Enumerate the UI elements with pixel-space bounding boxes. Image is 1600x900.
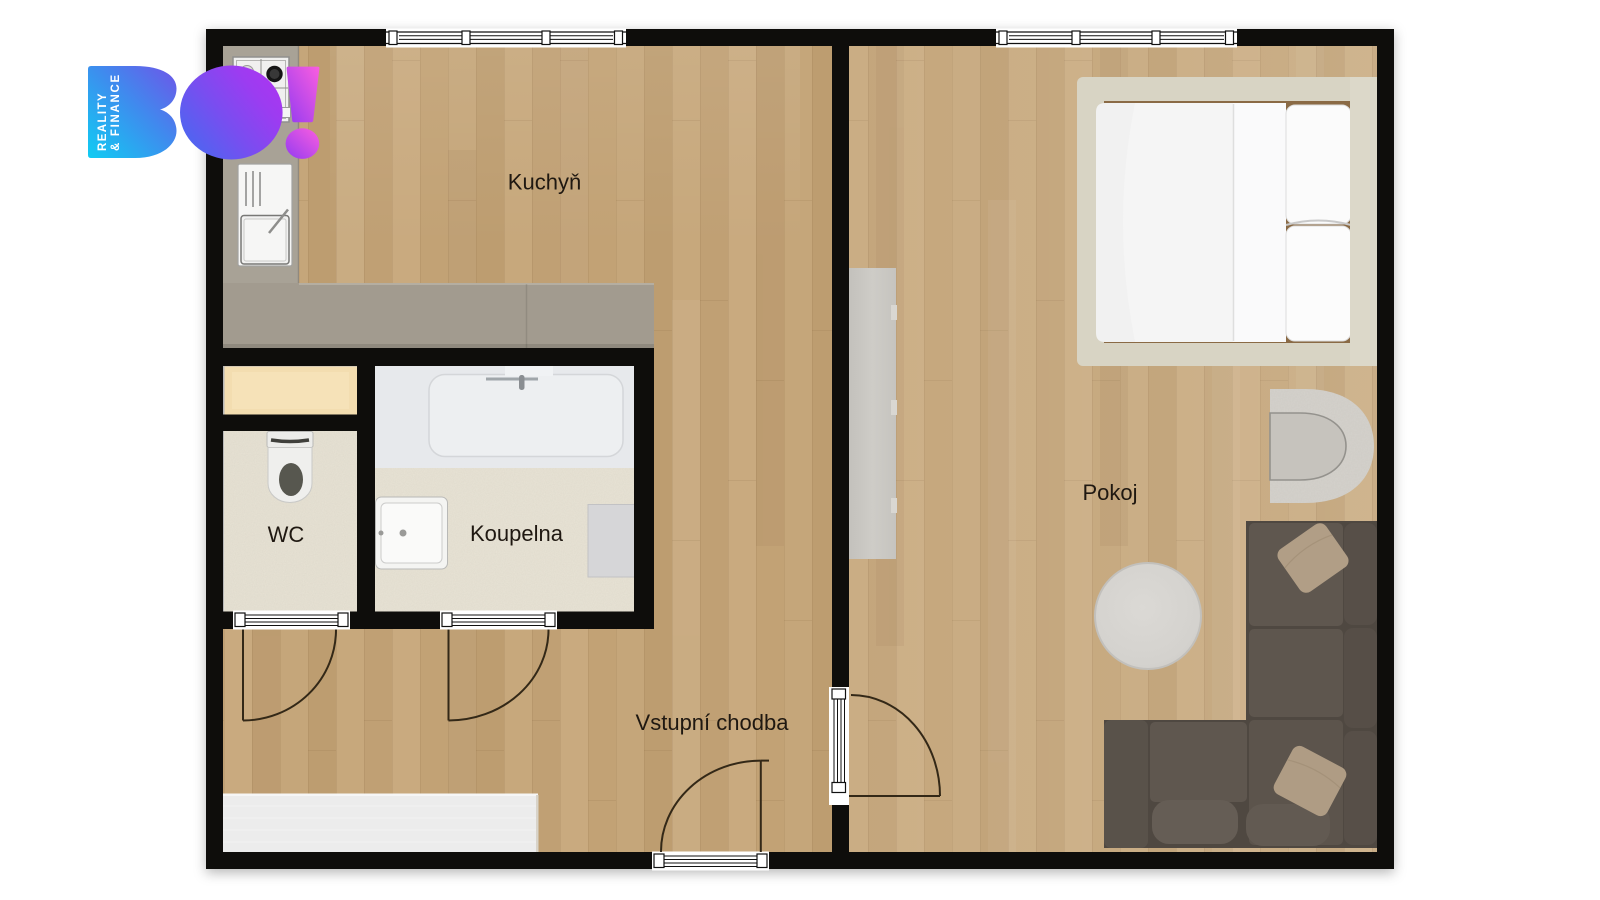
svg-text:REALITY: REALITY xyxy=(97,92,109,151)
svg-text:& FINANCE: & FINANCE xyxy=(110,73,122,151)
svg-text:Vstupní chodba: Vstupní chodba xyxy=(636,710,790,735)
svg-text:Kuchyň: Kuchyň xyxy=(508,170,581,195)
svg-text:Koupelna: Koupelna xyxy=(470,521,564,546)
svg-text:Pokoj: Pokoj xyxy=(1082,480,1137,505)
svg-text:WC: WC xyxy=(268,522,305,547)
